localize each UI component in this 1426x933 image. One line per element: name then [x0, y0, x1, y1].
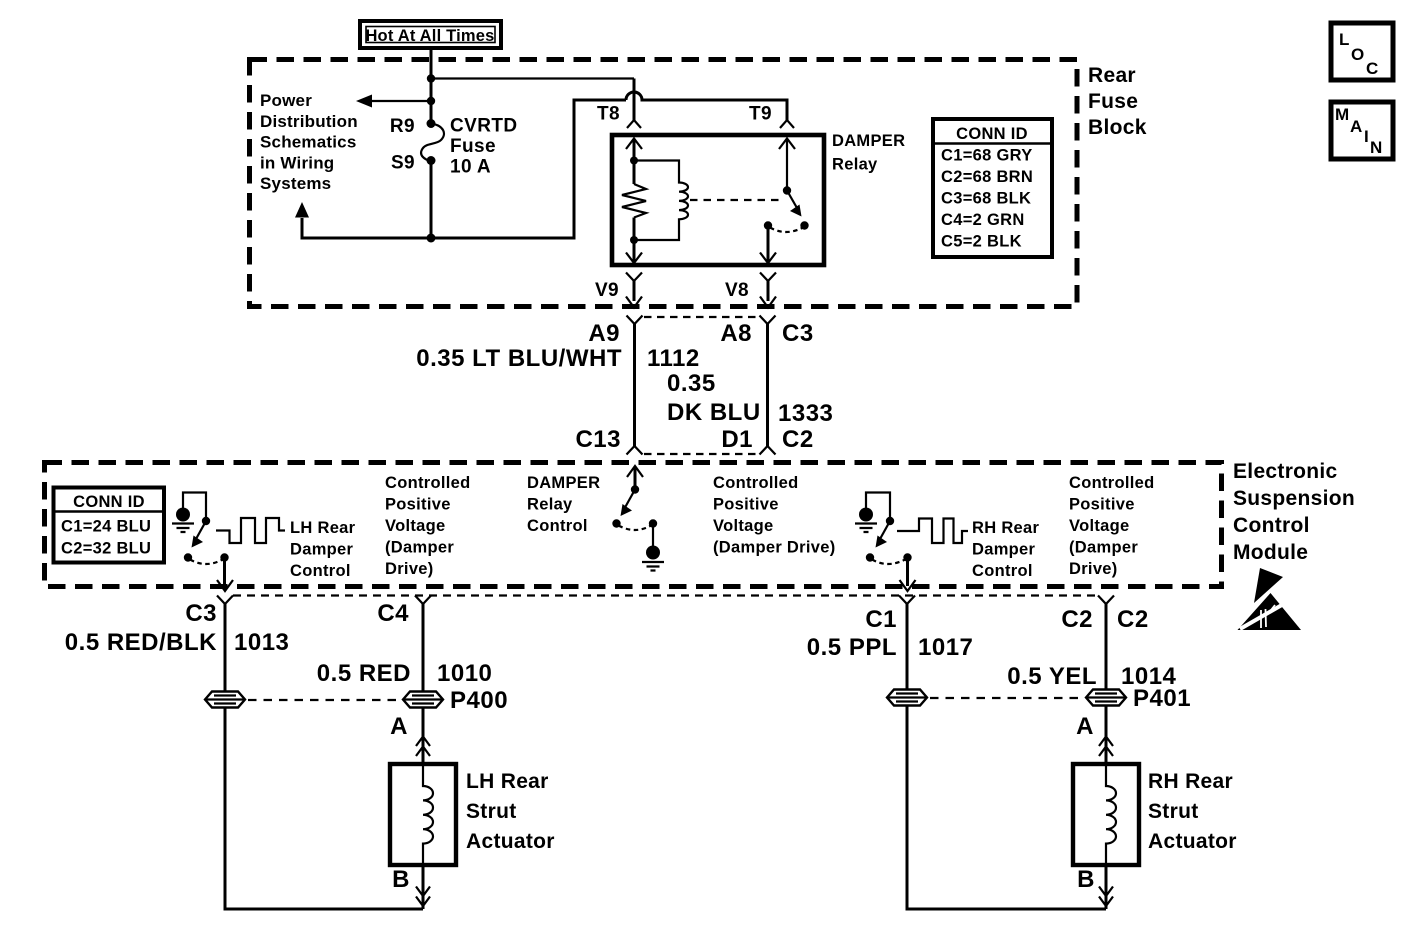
svg-text:(Damper Drive): (Damper Drive): [713, 539, 836, 557]
svg-text:Fuse: Fuse: [1088, 90, 1138, 113]
svg-text:(Damper: (Damper: [1069, 539, 1138, 557]
svg-text:D1: D1: [721, 426, 753, 453]
svg-text:Block: Block: [1088, 116, 1147, 139]
svg-text:T8: T8: [597, 104, 620, 125]
svg-text:A: A: [390, 713, 408, 740]
svg-text:Rear: Rear: [1088, 64, 1136, 87]
svg-text:Distribution: Distribution: [260, 112, 358, 131]
svg-text:Controlled: Controlled: [713, 474, 799, 492]
svg-text:LH Rear: LH Rear: [290, 519, 356, 537]
svg-text:Relay: Relay: [527, 496, 573, 514]
svg-text:C2: C2: [782, 426, 814, 453]
svg-text:P401: P401: [1133, 685, 1191, 712]
svg-text:C13: C13: [575, 426, 621, 453]
svg-text:Controlled: Controlled: [1069, 474, 1155, 492]
svg-text:Relay: Relay: [832, 156, 878, 174]
svg-text:Systems: Systems: [260, 174, 331, 193]
svg-text:C2: C2: [1117, 606, 1149, 633]
svg-text:Control: Control: [527, 517, 588, 535]
svg-text:B: B: [1077, 866, 1095, 893]
svg-text:C3: C3: [185, 600, 217, 627]
svg-text:DAMPER: DAMPER: [527, 474, 600, 492]
svg-text:Voltage: Voltage: [385, 517, 445, 535]
svg-text:Damper: Damper: [972, 541, 1036, 559]
svg-text:C3=68 BLK: C3=68 BLK: [941, 190, 1031, 208]
svg-text:Suspension: Suspension: [1233, 487, 1355, 510]
svg-text:N: N: [1370, 138, 1382, 157]
svg-text:LH Rear: LH Rear: [466, 770, 549, 793]
svg-text:0.5 YEL: 0.5 YEL: [1007, 663, 1097, 690]
svg-text:Electronic: Electronic: [1233, 460, 1338, 483]
svg-text:0.35: 0.35: [667, 370, 716, 397]
svg-text:Positive: Positive: [1069, 496, 1135, 514]
svg-text:DAMPER: DAMPER: [832, 132, 905, 150]
svg-text:Drive): Drive): [1069, 560, 1118, 578]
svg-text:Voltage: Voltage: [713, 517, 773, 535]
svg-text:M: M: [1335, 105, 1349, 124]
svg-text:C4: C4: [377, 600, 409, 627]
svg-text:C3: C3: [782, 320, 814, 347]
svg-text:Positive: Positive: [713, 496, 779, 514]
svg-text:L: L: [1339, 30, 1349, 49]
svg-text:I: I: [1364, 127, 1369, 146]
svg-text:Control: Control: [972, 562, 1033, 580]
svg-text:T9: T9: [749, 104, 772, 125]
svg-text:Hot At All Times: Hot At All Times: [365, 27, 494, 45]
svg-text:C2=32 BLU: C2=32 BLU: [61, 540, 151, 558]
svg-text:1017: 1017: [918, 634, 973, 661]
svg-text:A: A: [1076, 713, 1094, 740]
svg-text:CVRTD: CVRTD: [450, 116, 517, 137]
svg-text:in Wiring: in Wiring: [260, 153, 334, 172]
svg-text:A: A: [1350, 117, 1362, 136]
svg-text:C1: C1: [865, 606, 897, 633]
svg-text:Damper: Damper: [290, 541, 354, 559]
svg-text:C1=68 GRY: C1=68 GRY: [941, 147, 1033, 165]
svg-text:Positive: Positive: [385, 496, 451, 514]
svg-text:1013: 1013: [234, 629, 289, 656]
svg-text:Schematics: Schematics: [260, 133, 357, 152]
svg-text:CONN ID: CONN ID: [73, 493, 145, 511]
svg-text:Actuator: Actuator: [466, 830, 555, 853]
svg-text:(Damper: (Damper: [385, 539, 454, 557]
svg-text:Voltage: Voltage: [1069, 517, 1129, 535]
svg-text:C1=24 BLU: C1=24 BLU: [61, 518, 151, 536]
svg-text:0.35 LT BLU/WHT: 0.35 LT BLU/WHT: [416, 345, 622, 372]
svg-text:0.5 RED/BLK: 0.5 RED/BLK: [65, 629, 217, 656]
svg-text:A9: A9: [588, 320, 620, 347]
svg-text:0.5 RED: 0.5 RED: [317, 660, 411, 687]
svg-text:10 A: 10 A: [450, 157, 491, 178]
svg-text:C4=2 GRN: C4=2 GRN: [941, 211, 1025, 229]
svg-text:CONN ID: CONN ID: [956, 125, 1028, 143]
svg-text:A8: A8: [720, 320, 752, 347]
svg-text:Drive): Drive): [385, 560, 434, 578]
svg-text:V9: V9: [595, 280, 619, 301]
svg-text:Power: Power: [260, 91, 312, 110]
svg-text:B: B: [392, 866, 410, 893]
svg-text:S9: S9: [391, 153, 415, 174]
svg-text:P400: P400: [450, 687, 508, 714]
svg-text:Fuse: Fuse: [450, 136, 496, 157]
svg-text:R9: R9: [390, 116, 415, 137]
svg-text:Strut: Strut: [466, 800, 517, 823]
svg-text:Control: Control: [290, 562, 351, 580]
svg-text:RH Rear: RH Rear: [972, 519, 1039, 537]
svg-text:C: C: [1366, 59, 1378, 78]
svg-text:1010: 1010: [437, 660, 492, 687]
svg-text:C2=68 BRN: C2=68 BRN: [941, 168, 1033, 186]
svg-text:C5=2 BLK: C5=2 BLK: [941, 233, 1022, 251]
svg-text:Controlled: Controlled: [385, 474, 471, 492]
svg-text:DK BLU: DK BLU: [667, 399, 761, 426]
svg-text:C2: C2: [1061, 606, 1093, 633]
svg-text:O: O: [1351, 45, 1364, 64]
svg-text:Actuator: Actuator: [1148, 830, 1237, 853]
svg-text:1112: 1112: [647, 345, 700, 372]
svg-text:Control: Control: [1233, 514, 1310, 537]
svg-text:0.5 PPL: 0.5 PPL: [807, 634, 897, 661]
svg-text:Module: Module: [1233, 541, 1308, 564]
svg-text:Strut: Strut: [1148, 800, 1199, 823]
svg-text:V8: V8: [725, 280, 749, 301]
svg-text:1333: 1333: [778, 400, 833, 427]
svg-text:RH Rear: RH Rear: [1148, 770, 1233, 793]
